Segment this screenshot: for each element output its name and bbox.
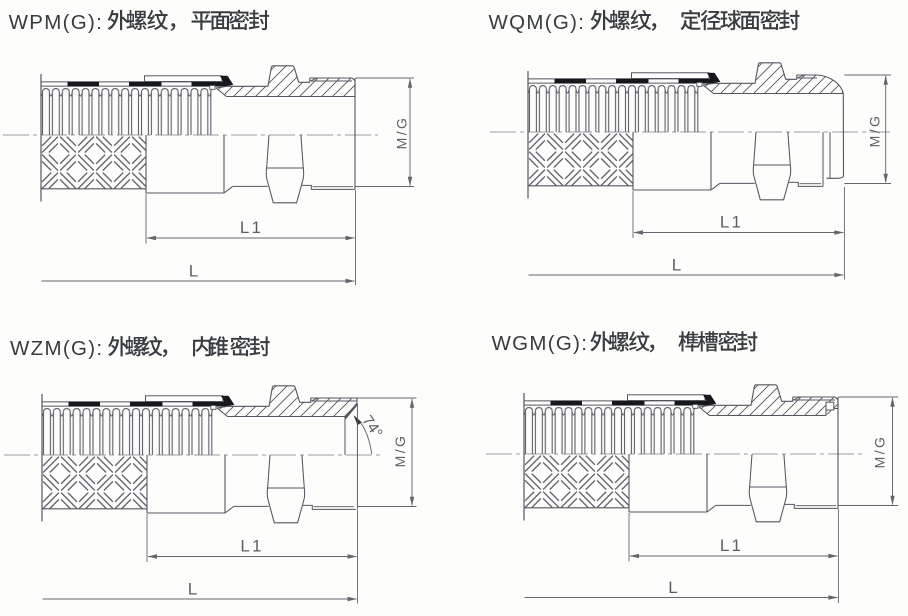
- svg-text:L1: L1: [720, 213, 743, 232]
- svg-text:M/G: M/G: [394, 116, 410, 150]
- svg-text:WZM(G):: WZM(G):: [10, 337, 103, 360]
- svg-text:M/G: M/G: [867, 114, 883, 148]
- svg-text:WGM(G):: WGM(G):: [492, 332, 589, 355]
- svg-text:L1: L1: [720, 536, 743, 555]
- svg-text:M/G: M/G: [872, 435, 888, 469]
- svg-text:L: L: [672, 256, 681, 275]
- svg-text:WPM(G):: WPM(G):: [9, 11, 104, 34]
- svg-text:WQM(G):: WQM(G):: [489, 11, 586, 34]
- svg-text:M/G: M/G: [392, 434, 408, 468]
- svg-text:L1: L1: [240, 537, 263, 556]
- svg-text:L1: L1: [240, 218, 263, 237]
- svg-text:L: L: [189, 262, 198, 281]
- svg-text:L: L: [668, 578, 677, 597]
- svg-text:L: L: [188, 580, 197, 599]
